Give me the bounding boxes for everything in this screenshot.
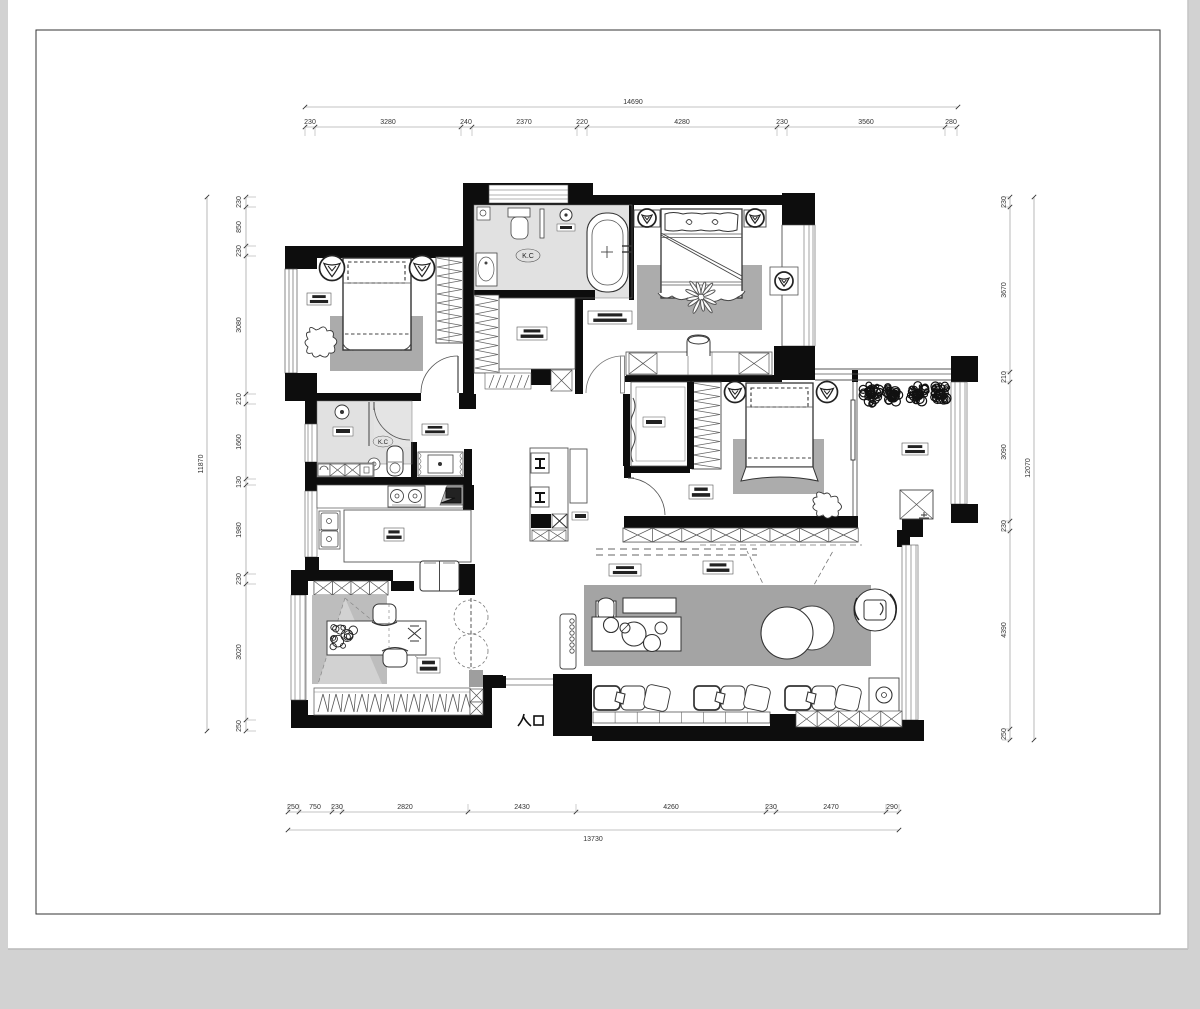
svg-text:12070: 12070: [1025, 458, 1032, 478]
svg-text:3280: 3280: [380, 119, 396, 126]
svg-text:290: 290: [886, 804, 898, 811]
svg-text:13730: 13730: [583, 836, 603, 843]
svg-text:230: 230: [236, 573, 243, 585]
svg-text:850: 850: [236, 221, 243, 233]
svg-text:230: 230: [1001, 520, 1008, 532]
svg-text:2430: 2430: [514, 804, 530, 811]
svg-text:11870: 11870: [198, 454, 205, 473]
svg-text:210: 210: [1001, 371, 1008, 383]
svg-text:1660: 1660: [236, 434, 243, 450]
svg-text:240: 240: [460, 119, 472, 126]
svg-text:230: 230: [776, 119, 788, 126]
svg-text:3560: 3560: [858, 119, 874, 126]
svg-text:210: 210: [236, 393, 243, 405]
svg-text:2470: 2470: [823, 804, 839, 811]
svg-text:230: 230: [331, 804, 343, 811]
svg-text:280: 280: [945, 119, 957, 126]
svg-text:220: 220: [576, 119, 588, 126]
svg-text:3670: 3670: [1001, 282, 1008, 298]
svg-text:230: 230: [1001, 196, 1008, 208]
svg-text:250: 250: [236, 720, 243, 732]
svg-text:K.C: K.C: [522, 253, 534, 260]
svg-text:3020: 3020: [236, 644, 243, 660]
svg-text:230: 230: [765, 804, 777, 811]
svg-text:1980: 1980: [236, 522, 243, 538]
svg-text:2370: 2370: [516, 119, 532, 126]
svg-text:250: 250: [287, 804, 299, 811]
svg-text:230: 230: [236, 245, 243, 257]
svg-text:250: 250: [1001, 728, 1008, 740]
svg-text:4280: 4280: [674, 119, 690, 126]
svg-text:130: 130: [236, 476, 243, 488]
svg-text:750: 750: [309, 804, 321, 811]
svg-text:K.C: K.C: [378, 440, 389, 446]
svg-text:2820: 2820: [397, 804, 413, 811]
svg-text:4390: 4390: [1001, 622, 1008, 638]
svg-text:230: 230: [236, 196, 243, 208]
svg-text:4260: 4260: [663, 804, 679, 811]
svg-text:14690: 14690: [623, 99, 643, 106]
svg-text:3090: 3090: [1001, 444, 1008, 460]
svg-text:3080: 3080: [236, 317, 243, 333]
svg-text:230: 230: [304, 119, 316, 126]
